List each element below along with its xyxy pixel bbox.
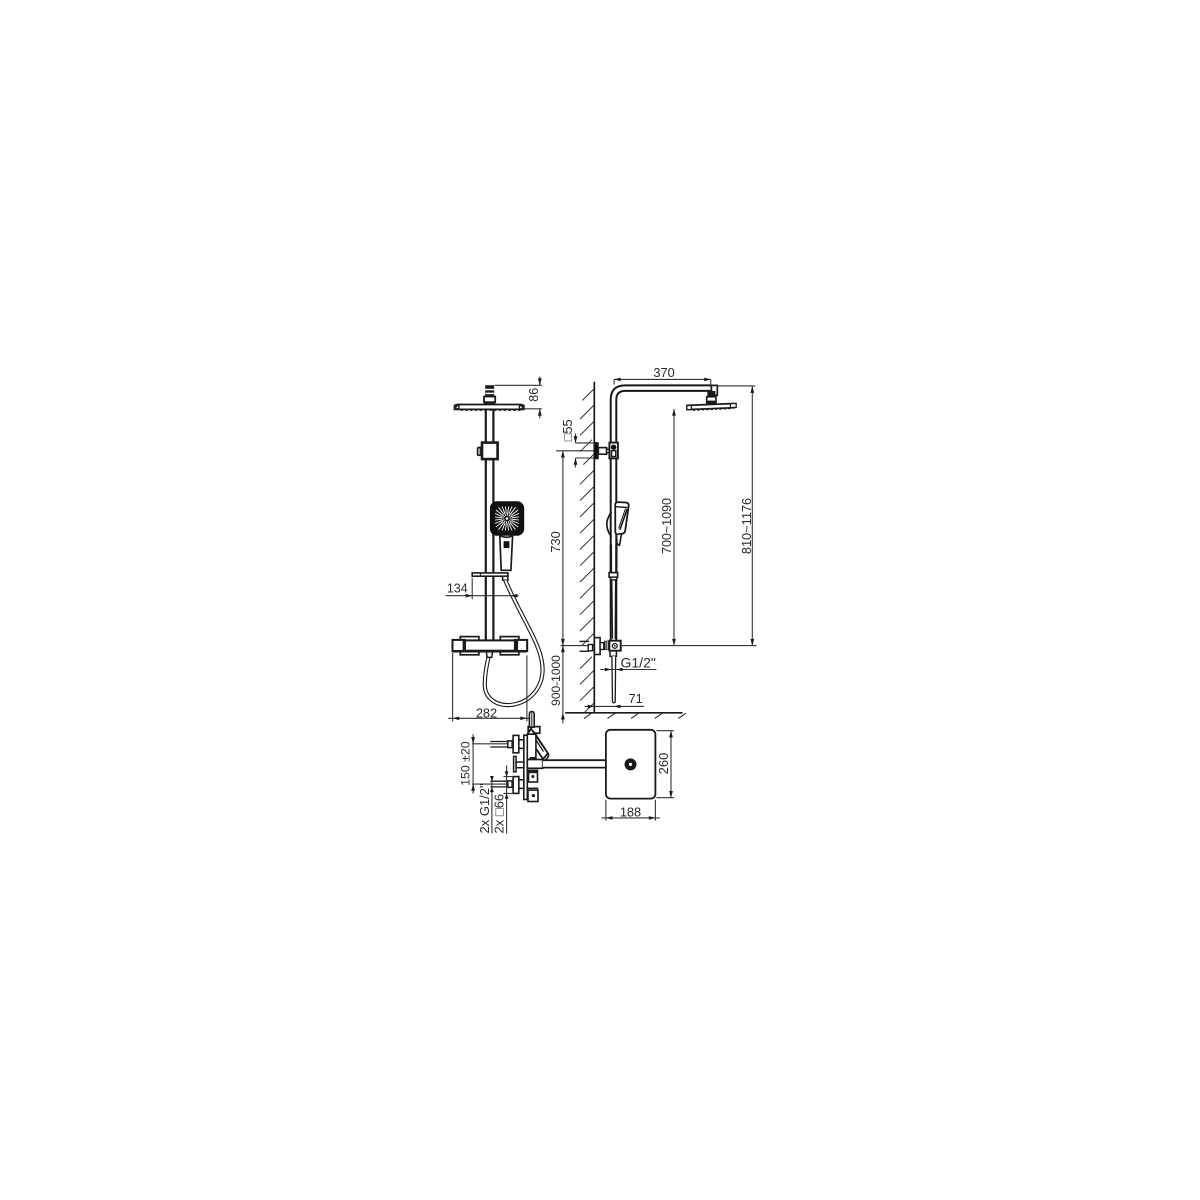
svg-text:282: 282 (476, 705, 497, 720)
svg-text:2x □66: 2x □66 (492, 794, 507, 834)
svg-text:810~1176: 810~1176 (739, 498, 754, 554)
svg-text:□55: □55 (560, 419, 575, 441)
svg-text:900-1000: 900-1000 (549, 655, 563, 706)
svg-text:134: 134 (447, 581, 468, 595)
svg-text:71: 71 (628, 691, 642, 706)
svg-text:2x G1/2": 2x G1/2" (477, 783, 492, 834)
svg-text:G1/2": G1/2" (621, 654, 656, 670)
svg-text:260: 260 (656, 753, 671, 775)
svg-text:188: 188 (620, 805, 641, 820)
svg-text:370: 370 (653, 365, 674, 380)
svg-text:730: 730 (548, 531, 563, 552)
svg-text:86: 86 (527, 388, 541, 402)
svg-text:150 ±20: 150 ±20 (459, 741, 473, 786)
svg-text:700~1090: 700~1090 (660, 498, 674, 554)
